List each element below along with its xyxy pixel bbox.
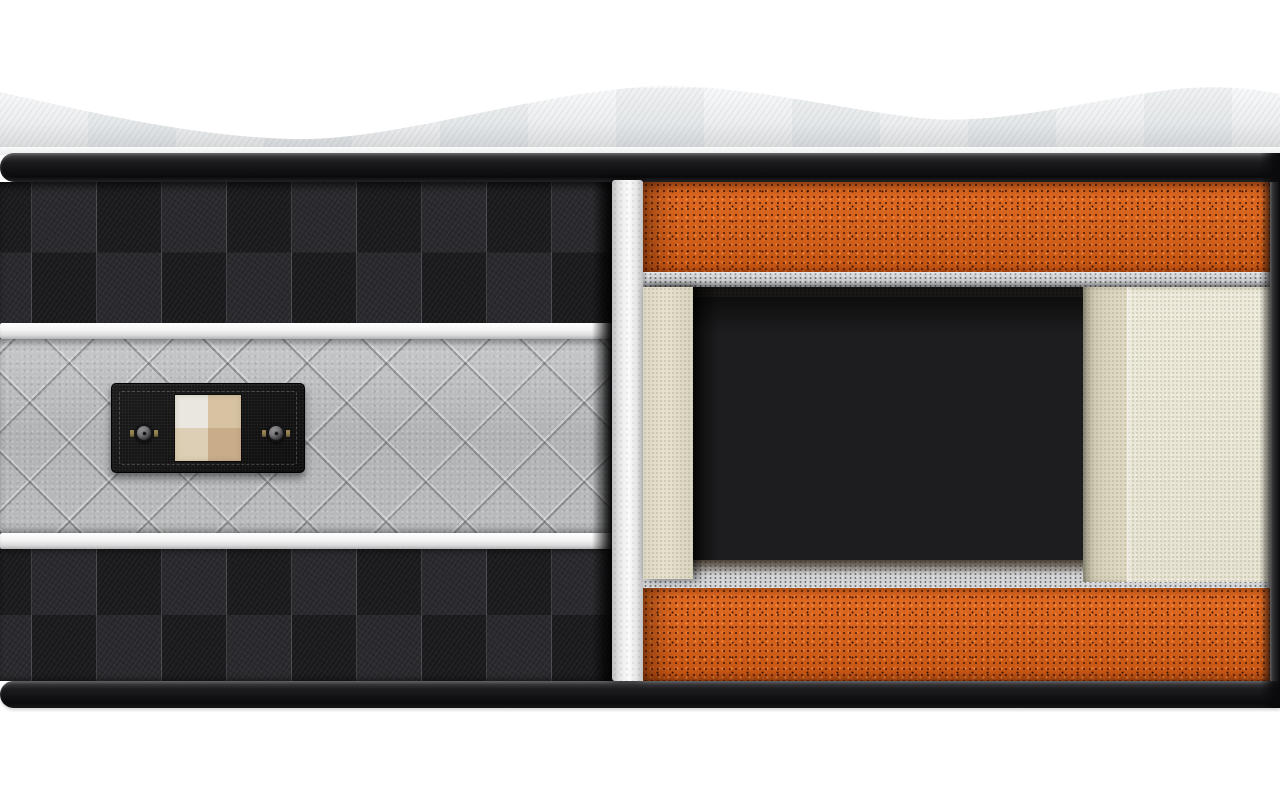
label-plate <box>111 383 305 473</box>
cut-edge-fabric-strip <box>612 180 643 681</box>
side-panel <box>0 182 614 681</box>
orange-foam-layer-bottom <box>643 588 1270 681</box>
cream-foam-encasement-wall <box>643 287 693 579</box>
cavity-left-shadow <box>693 287 719 560</box>
checker-fabric-upper <box>0 182 614 323</box>
orange-foam-layer-top <box>643 182 1270 272</box>
pocket-springs <box>693 295 1085 562</box>
quilted-top-surface <box>0 0 1280 156</box>
felt-pad-layer-top <box>643 272 1270 287</box>
top-surface-quilt-patches <box>0 86 1280 153</box>
white-piping-upper <box>0 323 614 339</box>
checker-fabric-lower <box>0 549 614 681</box>
cavity-top-shadow <box>683 287 1133 333</box>
button-pin <box>143 432 146 435</box>
button-pin <box>275 432 278 435</box>
right-edge-shadow <box>1260 153 1280 708</box>
tufting-button-right <box>267 424 285 442</box>
gray-quilted-band <box>0 339 614 533</box>
white-piping-lower <box>0 533 614 549</box>
mattress-cutaway-render <box>0 0 1280 800</box>
tufting-button-left <box>135 424 153 442</box>
top-piping-band <box>0 153 1280 182</box>
cream-foam-block-front-face <box>1127 287 1270 582</box>
cream-foam-block-side-face <box>1083 287 1127 582</box>
panel-cut-shadow <box>592 182 614 681</box>
bottom-piping-band <box>0 681 1280 708</box>
fabric-swatch-square <box>175 395 241 461</box>
spring-cavity <box>643 287 1270 588</box>
